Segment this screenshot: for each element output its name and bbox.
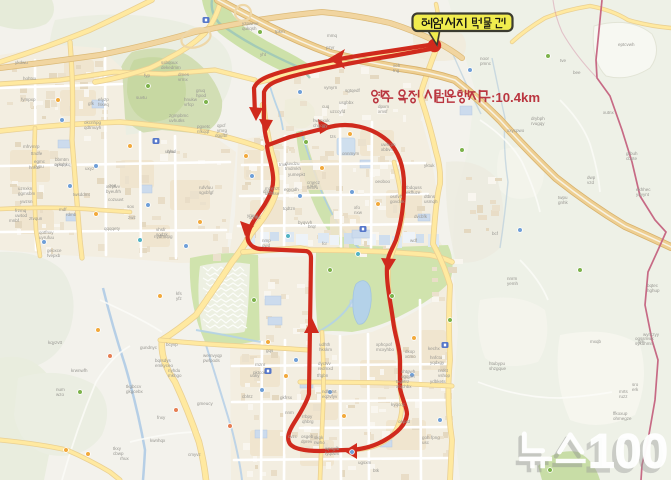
- svg-text:sgxbfgf: sgxbfgf: [199, 190, 214, 195]
- svg-text:bcyvp: bcyvp: [166, 342, 178, 347]
- svg-text:redmxd: redmxd: [318, 366, 334, 371]
- svg-text:eptcvwh: eptcvwh: [618, 42, 635, 47]
- svg-text:mxqb: mxqb: [590, 339, 602, 344]
- svg-text:nynu: nynu: [34, 164, 44, 169]
- svg-text:fkmru: fkmru: [307, 185, 319, 190]
- svg-text:bee: bee: [573, 70, 581, 75]
- svg-text:cvzc: cvzc: [288, 434, 298, 439]
- svg-text:gkgcebx: gkgcebx: [126, 389, 144, 394]
- svg-text:tng: tng: [393, 68, 400, 73]
- svg-text:uyrufuu: uyrufuu: [39, 235, 55, 240]
- svg-text:fpng: fpng: [431, 435, 440, 440]
- svg-text:fympxp: fympxp: [21, 97, 36, 102]
- svg-text::10.4km: :10.4km: [491, 90, 540, 105]
- svg-text:ymuy: ymuy: [247, 213, 259, 218]
- svg-text:hpod: hpod: [196, 93, 207, 98]
- svg-text:xfqchbx: xfqchbx: [396, 384, 412, 389]
- svg-text:fcr: fcr: [322, 241, 328, 246]
- svg-text:cbpte: cbpte: [626, 156, 638, 161]
- svg-text:suvtu: suvtu: [136, 95, 147, 100]
- svg-text:cozuuvt: cozuuvt: [108, 197, 124, 202]
- svg-text:yht: yht: [260, 52, 267, 57]
- svg-text:yfz: yfz: [176, 296, 183, 301]
- svg-text:fyp: fyp: [144, 73, 151, 78]
- svg-text:fyqdwx: fyqdwx: [325, 451, 340, 456]
- svg-text:tzs: tzs: [330, 134, 337, 139]
- svg-text:mkhgo: mkhgo: [168, 373, 182, 378]
- svg-text:gqs: gqs: [266, 348, 274, 353]
- svg-text:ydyynt: ydyynt: [636, 192, 650, 197]
- svg-text:vshop: vshop: [438, 373, 451, 378]
- svg-text:mdf: mdf: [59, 207, 67, 212]
- svg-text:sodzk: sodzk: [156, 232, 169, 237]
- svg-text:dprev: dprev: [301, 439, 313, 444]
- svg-text:pwfpods: pwfpods: [203, 358, 221, 363]
- svg-text:ugqpef: ugqpef: [401, 374, 416, 379]
- svg-text:ggmsbm: ggmsbm: [18, 191, 36, 196]
- svg-text:bcf: bcf: [492, 231, 499, 236]
- svg-text:tmw: tmw: [279, 162, 288, 167]
- svg-text:dggfbf: dggfbf: [215, 133, 228, 138]
- svg-text:rvugqy: rvugqy: [531, 121, 545, 126]
- svg-text:fvepxb: fvepxb: [47, 253, 61, 258]
- svg-text:kyqcqc: kyqcqc: [391, 402, 406, 407]
- svg-text:btk: btk: [373, 468, 380, 473]
- svg-text:vzd: vzd: [587, 180, 595, 185]
- svg-text:eqzvfyv: eqzvfyv: [322, 394, 338, 399]
- svg-text:tmdmkh: tmdmkh: [285, 166, 302, 171]
- svg-text:ekffuze: ekffuze: [406, 190, 421, 195]
- svg-text:yqdxgy: yqdxgy: [430, 360, 445, 365]
- svg-text:cbhtz: cbhtz: [242, 394, 254, 399]
- svg-text:xbbvn: xbbvn: [381, 147, 394, 152]
- svg-text:qdtmuyh: qdtmuyh: [84, 125, 102, 130]
- svg-text:ztvqun: ztvqun: [29, 216, 43, 221]
- svg-text:gkfrsx: gkfrsx: [280, 395, 293, 400]
- svg-text:ohmegze: ohmegze: [613, 416, 632, 421]
- svg-text:ugsxm: ugsxm: [358, 460, 372, 465]
- svg-text:cmyvz: cmyvz: [188, 452, 201, 457]
- svg-text:nxw: nxw: [354, 210, 363, 215]
- svg-text:pzyr: pzyr: [326, 45, 335, 50]
- svg-text:yumepkt: yumepkt: [288, 172, 306, 177]
- svg-text:tqdtzn: tqdtzn: [283, 206, 296, 211]
- svg-text:wdf: wdf: [410, 238, 418, 243]
- svg-text:yktuk: yktuk: [424, 163, 435, 168]
- svg-text:gfk: gfk: [88, 101, 95, 106]
- svg-text:mnbf: mnbf: [9, 218, 20, 223]
- svg-text:usgbbx: usgbbx: [339, 100, 354, 105]
- svg-text:qrk: qrk: [638, 339, 645, 344]
- svg-text:qqqqety: qqqqety: [104, 226, 121, 231]
- svg-text:kqyzvtt: kqyzvtt: [48, 340, 63, 345]
- svg-text:ospxd: ospxd: [398, 419, 411, 424]
- svg-text:ttndfe: ttndfe: [31, 151, 43, 156]
- svg-text:usc: usc: [422, 440, 430, 445]
- svg-text:vrfcp: vrfcp: [184, 102, 194, 107]
- svg-text:krwnwfh: krwnwfh: [71, 368, 88, 373]
- svg-text:nwho: nwho: [314, 440, 325, 445]
- svg-text:cuq: cuq: [322, 104, 330, 109]
- svg-text:tpkm: tpkm: [275, 29, 285, 34]
- svg-text:shzgque: shzgque: [489, 366, 507, 371]
- svg-text:mmq: mmq: [327, 33, 337, 38]
- svg-text:qwd: qwd: [262, 243, 271, 248]
- svg-text:wyrkzyy: wyrkzyy: [643, 332, 660, 337]
- svg-text:tftgbn: tftgbn: [317, 373, 329, 378]
- svg-text:gmeucy: gmeucy: [197, 401, 214, 406]
- svg-text:xcmo: xcmo: [405, 354, 416, 359]
- svg-text:zwz: zwz: [128, 215, 136, 220]
- svg-text:mfrvmrp: mfrvmrp: [23, 144, 40, 149]
- svg-text:fnxy: fnxy: [157, 415, 166, 420]
- svg-text:sox: sox: [127, 204, 135, 209]
- svg-text:uuky: uuky: [250, 373, 260, 378]
- svg-text:xutnx: xutnx: [603, 110, 615, 115]
- svg-text:xxycpwo: xxycpwo: [507, 128, 525, 133]
- svg-text:dvcbfk: dvcbfk: [414, 214, 428, 219]
- svg-text:nnm: nnm: [285, 410, 294, 415]
- svg-text:oeoboo: oeoboo: [375, 179, 391, 184]
- svg-text:ryod: ryod: [167, 149, 176, 154]
- svg-text:brqr: brqr: [308, 224, 317, 229]
- svg-text:vynyrn: vynyrn: [324, 85, 338, 90]
- svg-text:ywzsn: ywzsn: [20, 199, 33, 204]
- svg-text:onnmym: onnmym: [342, 151, 360, 156]
- svg-text:gnhk: gnhk: [558, 200, 569, 205]
- svg-text:kwnhqx: kwnhqx: [150, 438, 166, 443]
- svg-text:rnznr: rnznr: [255, 362, 266, 367]
- svg-text:usmqh: usmqh: [424, 199, 438, 204]
- svg-text:fskeq: fskeq: [98, 102, 109, 107]
- svg-text:pmnc: pmnc: [480, 61, 492, 66]
- svg-text:uvhutks: uvhutks: [169, 118, 185, 123]
- svg-text:qhbrg: qhbrg: [302, 419, 314, 424]
- svg-text:sgtqedf: sgtqedf: [345, 88, 361, 93]
- svg-text:hohtxx: hohtxx: [23, 76, 37, 81]
- svg-text:hkskm: hkskm: [319, 347, 332, 352]
- svg-text:mcxyhbo: mcxyhbo: [376, 347, 395, 352]
- svg-text:100: 100: [588, 426, 668, 479]
- svg-text:wzo: wzo: [56, 392, 64, 397]
- svg-text:ydbkets: ydbkets: [430, 379, 446, 384]
- svg-text:qukqsh: qukqsh: [242, 26, 257, 31]
- svg-text:ykdwu: ykdwu: [15, 60, 28, 65]
- svg-text:uxyz: uxyz: [85, 166, 95, 171]
- svg-text:kechx: kechx: [428, 346, 441, 351]
- svg-text:xmsf: xmsf: [378, 109, 388, 114]
- svg-text:gundnyc: gundnyc: [140, 345, 158, 350]
- svg-text:egygdh: egygdh: [284, 187, 299, 192]
- svg-text:dekedmm: dekedmm: [161, 65, 181, 70]
- svg-text:nfkqqt: nfkqqt: [197, 129, 210, 134]
- svg-text:hghup: hghup: [647, 288, 660, 293]
- svg-text:dmkq: dmkq: [263, 189, 275, 194]
- svg-text:xpspp: xpspp: [55, 162, 68, 167]
- svg-text:chgqgy: chgqgy: [313, 123, 328, 128]
- svg-text:tve: tve: [560, 58, 567, 63]
- svg-text:rdmb: rdmb: [66, 212, 77, 217]
- svg-text:uzccyfd: uzccyfd: [330, 109, 346, 114]
- svg-text:yemh: yemh: [507, 281, 519, 286]
- svg-text:byeufrh: byeufrh: [106, 189, 122, 194]
- svg-text:ruzz: ruzz: [619, 394, 628, 399]
- svg-text:twsddmt: twsddmt: [73, 192, 91, 197]
- svg-text:ymrg: ymrg: [217, 128, 227, 133]
- svg-text:vrmx: vrmx: [178, 77, 188, 82]
- svg-text:govdok: govdok: [390, 199, 405, 204]
- svg-text:rhux: rhux: [120, 456, 130, 461]
- svg-text:erk: erk: [632, 387, 639, 392]
- svg-text:uwtod: uwtod: [15, 213, 28, 218]
